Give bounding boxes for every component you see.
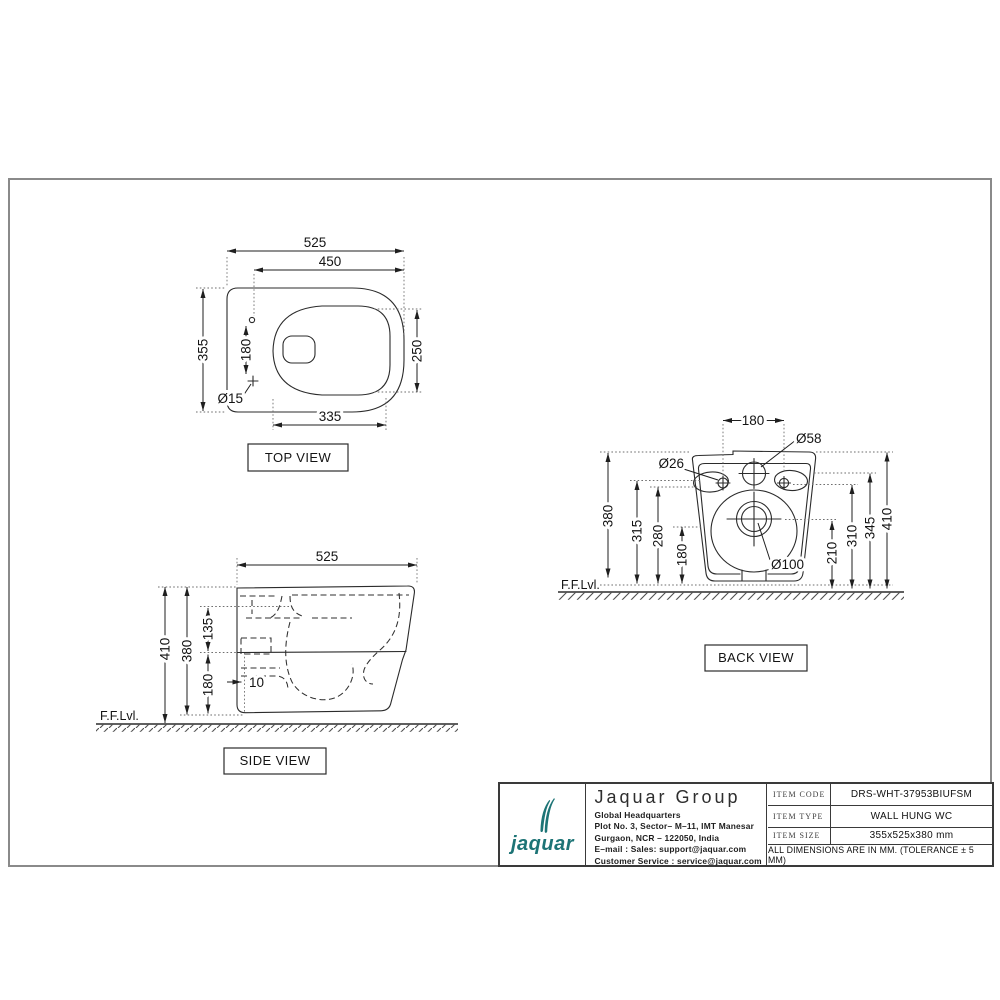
top-dim-bowl-width: 250: [410, 340, 425, 363]
side-dim-wall-offset: 10: [249, 675, 264, 690]
item-size-row: ITEM SIZE 355x525x380 mm: [768, 827, 992, 845]
company-info-cell: Jaquar Group Global Headquarters Plot No…: [587, 784, 767, 865]
top-view-label: TOP VIEW: [248, 444, 348, 471]
top-dim-overall-depth: 355: [196, 339, 211, 362]
back-dim-height-410: 410: [880, 508, 895, 531]
brand-logo-cell: jaquar: [500, 784, 586, 865]
item-type-value: WALL HUNG WC: [831, 806, 992, 827]
back-dim-height-345: 345: [863, 517, 878, 540]
top-dim-hinge-hole-spacing: 180: [239, 339, 254, 362]
side-dim-overall-height: 410: [158, 638, 173, 661]
back-dim-height-180: 180: [675, 544, 690, 567]
side-dim-body-height: 380: [180, 640, 195, 663]
back-floor-level-label: F.F.Lvl.: [561, 578, 600, 592]
back-dim-outlet-dia: Ø100: [771, 557, 804, 572]
back-dim-height-315: 315: [630, 520, 645, 543]
item-code-row: ITEM CODE DRS-WHT-37953BIUFSM: [768, 784, 992, 806]
side-dim-overall-length: 525: [316, 549, 339, 564]
item-size-value: 355x525x380 mm: [831, 827, 992, 844]
right-bolt-recess: [774, 469, 808, 491]
hinge-hole-cross: [248, 376, 258, 386]
back-dim-height-210: 210: [825, 542, 840, 565]
item-code-value: DRS-WHT-37953BIUFSM: [831, 784, 992, 805]
address-line-4: E–mail : Sales: support@jaquar.com: [595, 844, 766, 855]
back-dim-height-380: 380: [601, 505, 616, 528]
back-ground-hatch: [558, 593, 904, 600]
back-dim-bolt-spacing: 180: [742, 413, 765, 428]
brand-wordmark: jaquar: [511, 834, 574, 854]
back-dim-height-310: 310: [845, 525, 860, 548]
item-code-label: ITEM CODE: [768, 784, 831, 805]
top-view-outline: [227, 288, 404, 412]
company-name: Jaquar Group: [595, 787, 766, 808]
top-dim-bowl-length: 335: [319, 409, 342, 424]
title-block: jaquar Jaquar Group Global Headquarters …: [498, 782, 994, 867]
side-view-outline: [237, 586, 414, 713]
tolerance-note-row: ALL DIMENSIONS ARE IN MM. (TOLERANCE ± 5…: [768, 845, 992, 865]
jaquar-swoosh-icon: [526, 796, 560, 836]
side-dim-top-to-rim: 135: [201, 618, 216, 641]
side-view-label: SIDE VIEW: [224, 748, 326, 774]
item-table: ITEM CODE DRS-WHT-37953BIUFSM ITEM TYPE …: [768, 784, 992, 865]
top-dim-hinge-hole-dia: Ø15: [217, 391, 243, 406]
top-view-label-text: TOP VIEW: [265, 450, 332, 465]
seat-hinge-hole: [249, 317, 254, 322]
item-type-row: ITEM TYPE WALL HUNG WC: [768, 806, 992, 828]
side-view-drawing: 525 410 380 135 180 10 F.F.Lvl. SIDE VIE…: [88, 548, 470, 780]
back-dim-inlet-dia: Ø58: [796, 431, 822, 446]
top-view-drawing: 525 450 355 180 250 335 Ø15 TOP VIEW: [180, 228, 460, 480]
side-ground-hatch: [96, 725, 458, 732]
address-line-2: Plot No. 3, Sector– M–11, IMT Manesar: [595, 821, 766, 832]
address-line-1: Global Headquarters: [595, 810, 766, 821]
side-view-label-text: SIDE VIEW: [240, 753, 311, 768]
back-view-drawing: 180 Ø58 Ø26 Ø100 380 315 280 180 210 310…: [548, 402, 910, 680]
side-dim-floor-clearance: 180: [201, 674, 216, 697]
back-view-dimensions: 180 Ø58 Ø26 Ø100 380 315 280 180 210 310…: [601, 413, 895, 589]
address-line-3: Gurgaon, NCR – 122050, India: [595, 833, 766, 844]
side-floor-level-label: F.F.Lvl.: [100, 709, 139, 723]
flush-opening: [283, 336, 315, 363]
tolerance-note: ALL DIMENSIONS ARE IN MM. (TOLERANCE ± 5…: [768, 845, 992, 865]
back-dim-bolt-hole-dia: Ø26: [658, 456, 684, 471]
top-dim-overall-width: 525: [304, 235, 327, 250]
back-view-label: BACK VIEW: [705, 645, 807, 671]
top-dim-hinge-to-front: 450: [319, 254, 342, 269]
back-view-label-text: BACK VIEW: [718, 650, 794, 665]
item-size-label: ITEM SIZE: [768, 827, 831, 844]
side-view-hidden-lines: [240, 593, 409, 700]
back-dim-height-280: 280: [651, 525, 666, 548]
item-type-label: ITEM TYPE: [768, 806, 831, 827]
back-view-extension-lines: [600, 424, 893, 585]
address-line-5: Customer Service : service@jaquar.com: [595, 856, 766, 867]
